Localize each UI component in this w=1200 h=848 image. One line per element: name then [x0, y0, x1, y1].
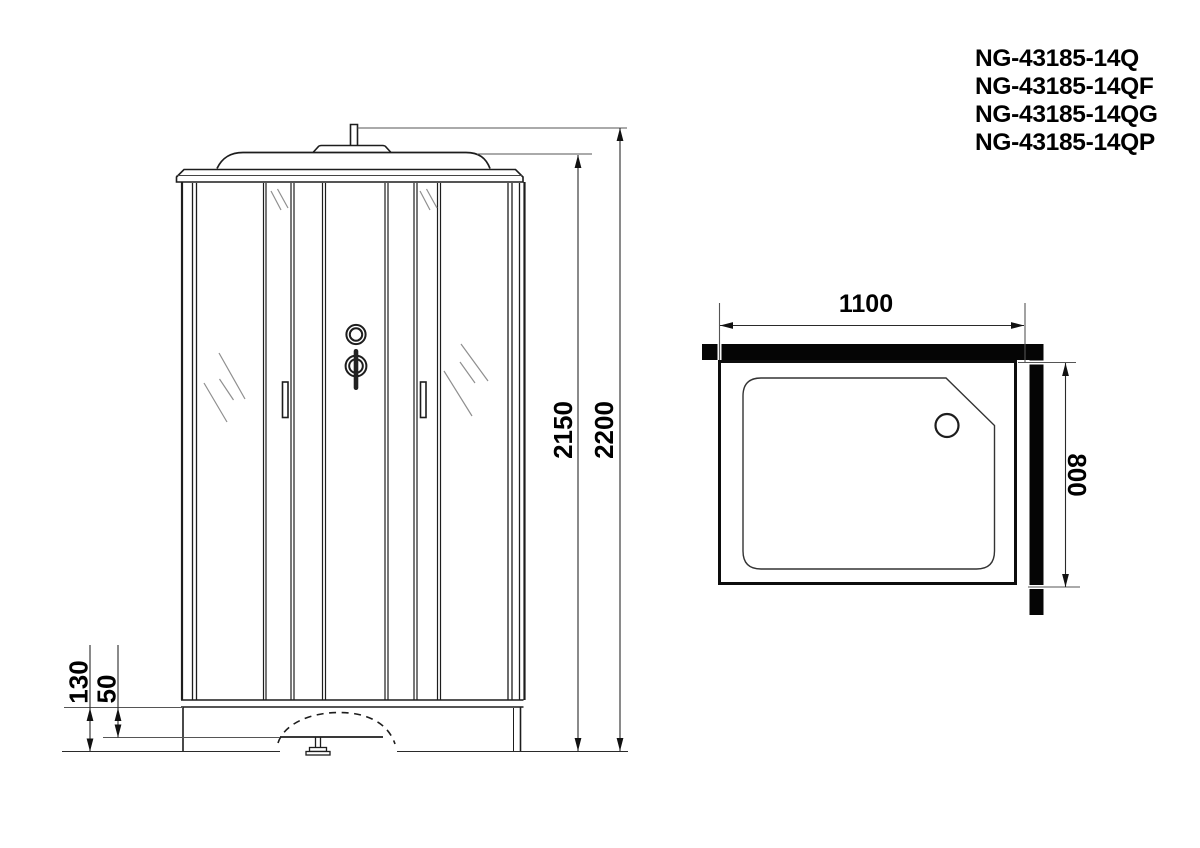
shower-cabin-drawing: 2150 2200 130 50	[0, 0, 1200, 848]
roof-dome	[217, 153, 490, 169]
dim-cabin-height: 2150	[548, 155, 581, 751]
dim-overall-height: 2200	[589, 128, 623, 751]
door-handle-left	[283, 382, 289, 418]
dim-depth-label: 800	[1062, 453, 1092, 496]
model-number-4: NG-43185-14QP	[975, 129, 1155, 156]
dim-base-height: 130	[64, 645, 94, 752]
dim-base-height-label: 130	[64, 660, 94, 703]
tray-outline	[720, 362, 1016, 584]
service-cutout-arc	[278, 713, 395, 745]
wall-top	[702, 344, 1036, 360]
front-view	[177, 125, 525, 756]
mixer-controls	[346, 325, 367, 390]
dim-overall-height-label: 2200	[589, 401, 619, 459]
adjustable-foot	[306, 738, 330, 756]
drain-hole	[936, 414, 959, 437]
roof-plateau	[313, 146, 391, 153]
wall-right	[1030, 344, 1044, 615]
dim-tray-rim-label: 50	[92, 675, 122, 704]
glass-reflections	[204, 189, 488, 422]
dim-cabin-height-label: 2150	[548, 401, 578, 459]
cabin-frame	[182, 182, 525, 700]
base-tray	[181, 700, 524, 755]
top-view	[702, 342, 1080, 615]
technical-drawing-page: 2150 2200 130 50	[0, 0, 1200, 848]
front-dimensions: 2150 2200 130 50	[62, 128, 628, 752]
door-handle-right	[421, 382, 427, 418]
dim-tray-rim: 50	[92, 645, 122, 738]
dim-width-label: 1100	[839, 290, 893, 318]
model-number-1: NG-43185-14Q	[975, 45, 1139, 72]
dim-depth: 800	[1018, 363, 1092, 588]
shower-pipe	[351, 125, 358, 147]
model-number-2: NG-43185-14QF	[975, 73, 1154, 100]
door-panel-lines	[264, 183, 441, 700]
model-number-3: NG-43185-14QG	[975, 101, 1158, 128]
mixer-lever	[354, 349, 359, 390]
model-numbers: NG-43185-14Q NG-43185-14QF NG-43185-14QG…	[975, 45, 1158, 156]
